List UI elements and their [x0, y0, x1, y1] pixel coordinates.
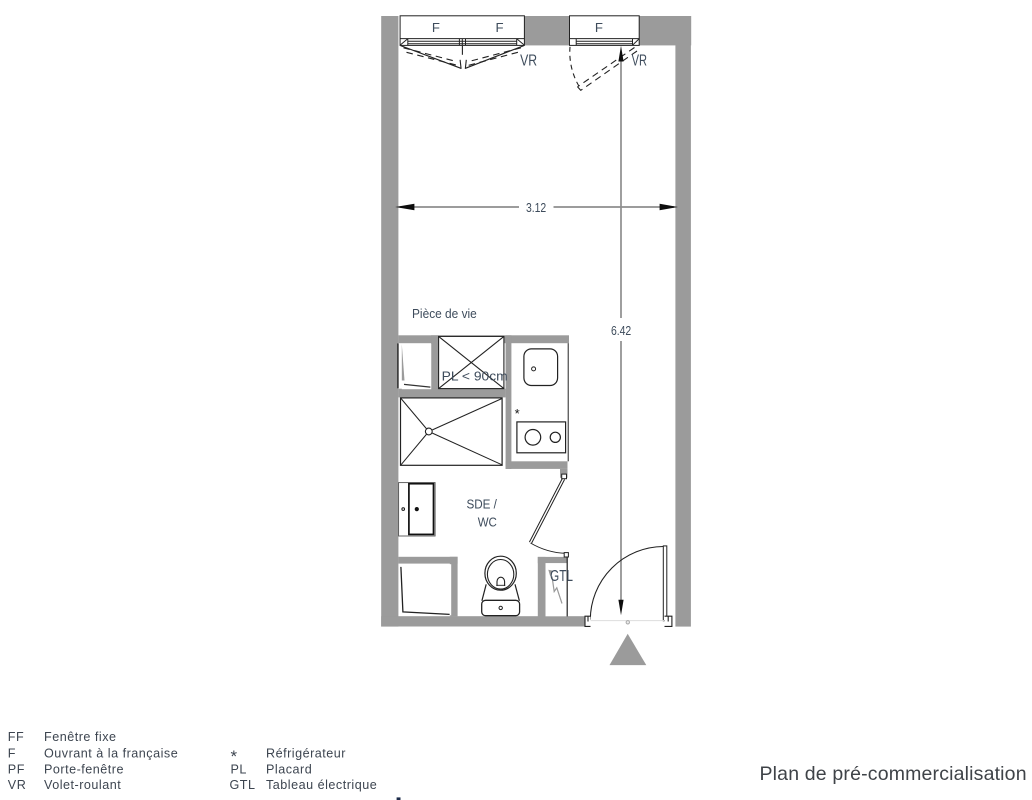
svg-text:Plan de pré-commercialisation: Plan de pré-commercialisation: [760, 763, 1027, 785]
svg-text:SDE /: SDE /: [466, 497, 497, 512]
svg-text:Fenêtre fixe: Fenêtre fixe: [44, 730, 117, 744]
svg-text:Réfrigérateur: Réfrigérateur: [266, 747, 346, 761]
svg-text:Tableau électrique: Tableau électrique: [266, 778, 377, 792]
svg-text:F: F: [432, 20, 440, 35]
svg-text:VR: VR: [8, 778, 27, 792]
svg-text:PL < 90cm: PL < 90cm: [442, 368, 508, 383]
svg-text:FF: FF: [8, 730, 24, 744]
svg-text:GTL: GTL: [230, 778, 256, 792]
svg-text:Pièce de vie: Pièce de vie: [412, 306, 477, 321]
svg-text:F: F: [8, 747, 16, 761]
svg-text:Porte-fenêtre: Porte-fenêtre: [44, 763, 124, 777]
svg-text:Placard: Placard: [266, 763, 312, 777]
svg-text:6.42: 6.42: [611, 323, 631, 338]
svg-text:3.12: 3.12: [526, 200, 546, 215]
svg-text:Ouvrant à la française: Ouvrant à la française: [44, 747, 178, 761]
svg-text:F: F: [595, 20, 603, 35]
svg-text:WC: WC: [478, 514, 498, 529]
svg-text:GTL: GTL: [550, 568, 573, 585]
svg-text:PF: PF: [8, 763, 25, 777]
svg-text:PL: PL: [231, 763, 247, 777]
svg-text:*: *: [515, 406, 520, 421]
svg-text:F: F: [495, 20, 503, 35]
svg-text:Volet-roulant: Volet-roulant: [44, 778, 121, 792]
svg-text:VR: VR: [632, 52, 647, 69]
svg-text:VR: VR: [520, 52, 537, 69]
